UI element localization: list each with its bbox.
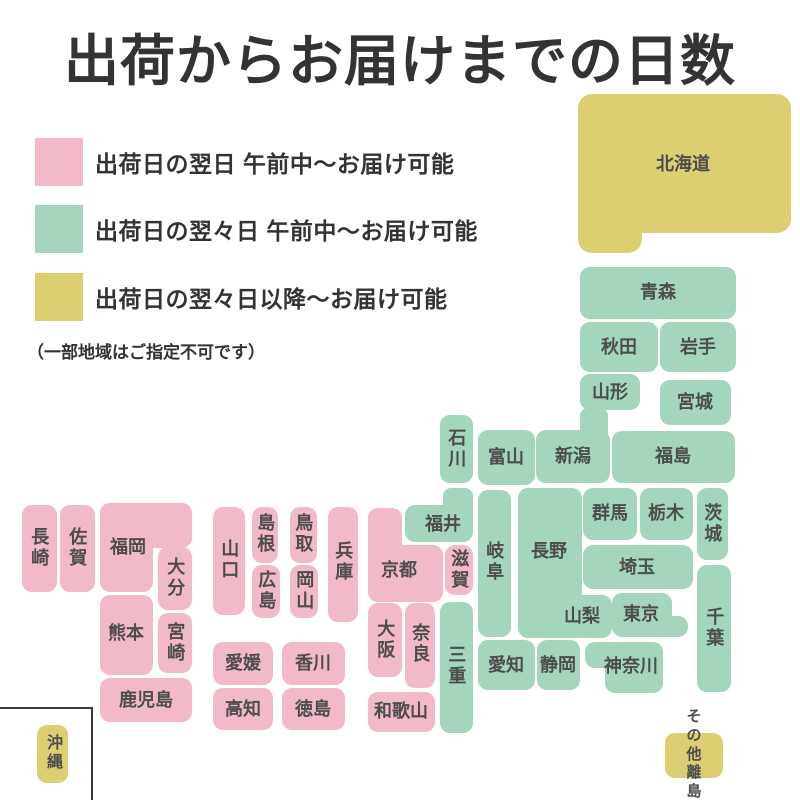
- prefecture-label: 青森: [640, 281, 676, 304]
- prefecture-label: 島根: [254, 513, 277, 555]
- prefecture-label: 秋田: [601, 336, 637, 359]
- prefecture-label: 岡山: [293, 570, 316, 612]
- legend-note: （一部地域はご指定不可です）: [27, 338, 265, 363]
- legend-label: 出荷日の翌々日 午前中〜お届け可能: [95, 212, 478, 246]
- prefecture-label: 新潟: [555, 445, 591, 468]
- prefecture-label: 徳島: [295, 698, 331, 721]
- prefecture-label: 静岡: [540, 654, 576, 677]
- prefecture-label: 福島: [655, 445, 691, 468]
- delivery-days-infographic: 出荷からお届けまでの日数 出荷日の翌日 午前中〜お届け可能 出荷日の翌々日 午前…: [0, 0, 800, 800]
- prefecture-label: 石川: [445, 428, 468, 470]
- prefecture-label: 岩手: [680, 336, 716, 359]
- prefecture-label: 奈良: [409, 623, 432, 665]
- prefecture-label: 山形: [592, 381, 628, 404]
- okinawa-inset-box: [0, 707, 93, 800]
- prefecture-label: 大分: [164, 557, 187, 599]
- prefecture-label: 和歌山: [374, 700, 428, 723]
- prefecture-label: 愛媛: [225, 652, 261, 675]
- prefecture-label: 熊本: [108, 622, 144, 645]
- prefecture-label: 兵庫: [332, 541, 355, 583]
- prefecture-label: 東京: [623, 603, 659, 626]
- prefecture-label: 佐賀: [66, 527, 89, 569]
- prefecture-label: 宮城: [677, 391, 713, 414]
- legend-swatch-yellow: [35, 273, 83, 321]
- prefecture-label: 群馬: [592, 502, 628, 525]
- prefecture-shape: [580, 408, 608, 440]
- prefecture-label: 大阪: [374, 619, 397, 661]
- prefecture-label: 滋賀: [448, 549, 471, 591]
- prefecture-label: 茨城: [701, 503, 724, 545]
- prefecture-label: その他 離島: [686, 708, 701, 800]
- legend-label: 出荷日の翌日 午前中〜お届け可能: [95, 145, 454, 179]
- prefecture-label: 福井: [425, 513, 461, 536]
- prefecture-label: 長崎: [28, 527, 51, 569]
- prefecture-label: 千葉: [703, 607, 726, 649]
- legend-swatch-green: [35, 205, 83, 253]
- prefecture-label: 鳥取: [292, 513, 315, 555]
- prefecture-label: 愛知: [488, 654, 524, 677]
- prefecture-label: 宮崎: [164, 622, 187, 664]
- prefecture-label: 高知: [225, 698, 261, 721]
- prefecture-label: 北海道: [656, 153, 710, 176]
- prefecture-label: 山梨: [564, 605, 600, 628]
- page-title: 出荷からお届けまでの日数: [0, 16, 800, 96]
- prefecture-label: 長野: [531, 540, 567, 563]
- prefecture-label: 岐阜: [483, 541, 506, 583]
- prefecture-label: 福岡: [110, 536, 146, 559]
- prefecture-label: 山口: [218, 539, 241, 581]
- prefecture-label: 埼玉: [619, 556, 655, 579]
- prefecture-label: 香川: [295, 652, 331, 675]
- prefecture-label: 神奈川: [604, 655, 658, 678]
- legend-label: 出荷日の翌々日以降〜お届け可能: [95, 280, 448, 314]
- prefecture-label: 広島: [255, 570, 278, 612]
- prefecture-label: 鹿児島: [119, 689, 173, 712]
- prefecture-label: 栃木: [648, 502, 684, 525]
- prefecture-shape: [578, 180, 642, 253]
- prefecture-label: 京都: [381, 559, 417, 582]
- prefecture-label: 三重: [445, 645, 468, 687]
- prefecture-label: 富山: [488, 446, 524, 469]
- legend-swatch-pink: [35, 138, 83, 186]
